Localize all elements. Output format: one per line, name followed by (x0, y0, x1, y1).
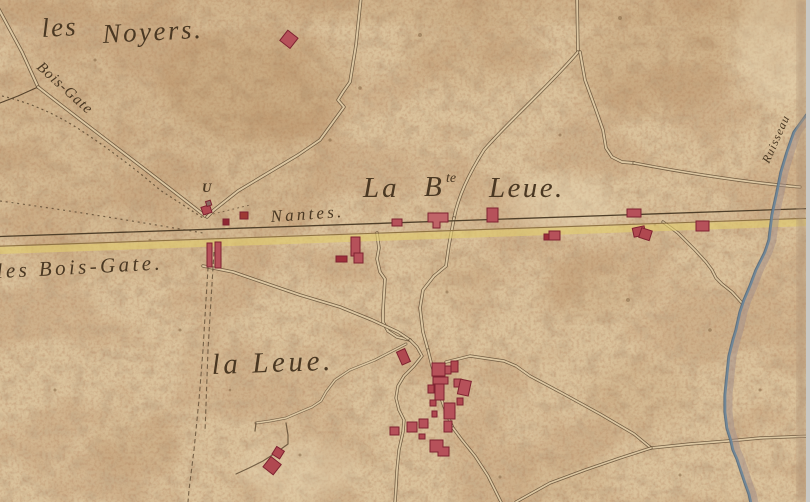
svg-text:la Leue.: la Leue. (211, 345, 334, 381)
svg-text:Noyers.: Noyers. (101, 14, 204, 49)
svg-text:les: les (41, 11, 79, 43)
svg-text:te: te (446, 171, 456, 186)
svg-text:B: B (424, 171, 442, 203)
svg-text:U: U (202, 180, 212, 195)
svg-text:Leue.: Leue. (488, 172, 565, 204)
svg-text:La: La (362, 172, 400, 204)
